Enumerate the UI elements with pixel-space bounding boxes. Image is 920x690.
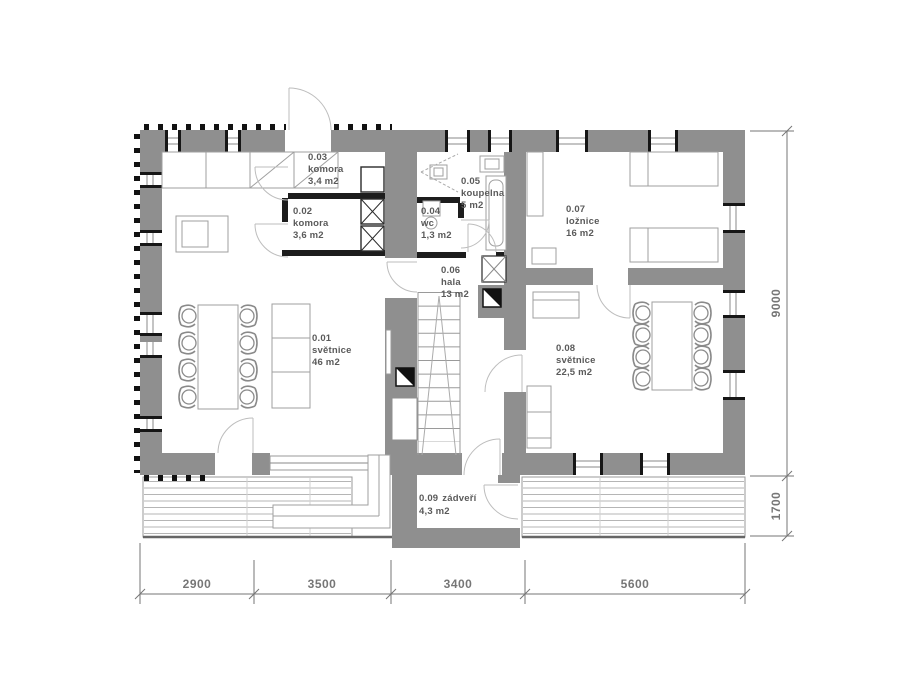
- window: [140, 312, 162, 336]
- svg-text:0.05: 0.05: [461, 176, 481, 187]
- svg-text:16 m2: 16 m2: [566, 228, 594, 239]
- dining-table-left: [179, 305, 257, 409]
- dim-3400: 3400: [444, 577, 473, 591]
- room-label-0-08: 0.08 světnice 22,5 m2: [556, 343, 596, 378]
- washbasin: [480, 156, 504, 172]
- chimney-icon: [396, 368, 414, 386]
- svg-text:koupelna: koupelna: [461, 188, 505, 199]
- svg-text:13 m2: 13 m2: [441, 289, 469, 300]
- svg-text:komora: komora: [308, 164, 344, 175]
- svg-text:0.08: 0.08: [556, 343, 575, 354]
- appliance-stack: [361, 167, 384, 251]
- svg-text:0.06: 0.06: [441, 265, 460, 276]
- window: [556, 130, 588, 152]
- door-zadveri-hala: [464, 439, 500, 475]
- svg-text:wc: wc: [420, 218, 434, 229]
- window: [140, 230, 162, 246]
- sofa-right: [533, 292, 579, 318]
- window: [723, 203, 745, 233]
- shaft-box: [482, 256, 506, 282]
- svg-text:světnice: světnice: [312, 345, 352, 356]
- svg-text:3,6 m2: 3,6 m2: [293, 230, 324, 241]
- room-label-0-07: 0.07 ložnice 16 m2: [566, 204, 600, 239]
- svg-text:3,4 m2: 3,4 m2: [308, 176, 339, 187]
- svg-text:komora: komora: [293, 218, 329, 229]
- svg-text:0.02: 0.02: [293, 206, 312, 217]
- window: [488, 130, 512, 152]
- shower: [421, 154, 458, 192]
- svg-text:46 m2: 46 m2: [312, 357, 340, 368]
- window: [723, 290, 745, 318]
- window: [165, 130, 181, 152]
- bedroom-furniture: [527, 152, 718, 264]
- svg-text:5 m2: 5 m2: [461, 200, 483, 211]
- window: [140, 172, 162, 188]
- svg-text:hala: hala: [441, 277, 461, 288]
- window: [723, 370, 745, 400]
- svg-text:0.01: 0.01: [312, 333, 332, 344]
- svg-text:4,3 m2: 4,3 m2: [419, 506, 450, 517]
- dimensions-bottom: 2900 3500 3400 5600: [135, 543, 750, 604]
- dim-1700: 1700: [769, 492, 783, 521]
- svg-text:0.09zádveří: 0.09zádveří: [419, 493, 477, 504]
- terrace-right: [522, 477, 745, 537]
- svg-text:ložnice: ložnice: [566, 216, 600, 227]
- dim-9000: 9000: [769, 289, 783, 318]
- svg-text:světnice: světnice: [556, 355, 596, 366]
- room-label-0-06: 0.06 hala 13 m2: [441, 265, 469, 300]
- svg-text:22,5 m2: 22,5 m2: [556, 367, 592, 378]
- svg-text:0.07: 0.07: [566, 204, 585, 215]
- door-zadveri-terrace: [484, 485, 518, 519]
- window: [140, 342, 162, 358]
- dim-5600: 5600: [621, 577, 650, 591]
- floor-plan-drawing: 0.01 světnice 46 m2 0.02 komora 3,6 m2 0…: [0, 0, 920, 690]
- window: [445, 130, 470, 152]
- window: [648, 130, 678, 152]
- svg-text:0.03: 0.03: [308, 152, 327, 163]
- chimney-icon: [483, 289, 501, 307]
- svg-text:1,3 m2: 1,3 m2: [421, 230, 452, 241]
- dim-2900: 2900: [183, 577, 212, 591]
- room-label-0-01: 0.01 světnice 46 m2: [312, 333, 352, 368]
- window: [225, 130, 241, 152]
- stairs: [418, 292, 460, 455]
- cabinet-right: [527, 386, 551, 448]
- door-hala-livingroom: [387, 262, 417, 292]
- door-wc: [461, 220, 489, 248]
- door-livingroom-terrace: [218, 418, 253, 453]
- window: [573, 453, 603, 475]
- dining-table-right: [633, 302, 711, 390]
- room-label-0-09: 0.09zádveří 4,3 m2: [419, 493, 477, 517]
- door-hala-svetnice08: [485, 355, 522, 392]
- window: [140, 416, 162, 432]
- svg-text:0.04: 0.04: [421, 206, 441, 217]
- room-label-0-04: 0.04 wc 1,3 m2: [420, 206, 452, 241]
- door-exterior-top: [289, 88, 331, 130]
- dimensions-right: 9000 1700: [750, 126, 794, 541]
- dim-3500: 3500: [308, 577, 337, 591]
- door-loznice: [597, 285, 630, 318]
- sofa-left: [272, 304, 310, 408]
- room-label-0-02: 0.02 komora 3,6 m2: [293, 206, 329, 241]
- room-label-0-03: 0.03 komora 3,4 m2: [308, 152, 344, 187]
- window: [640, 453, 670, 475]
- floor-plan-sheet: 0.01 světnice 46 m2 0.02 komora 3,6 m2 0…: [0, 0, 920, 690]
